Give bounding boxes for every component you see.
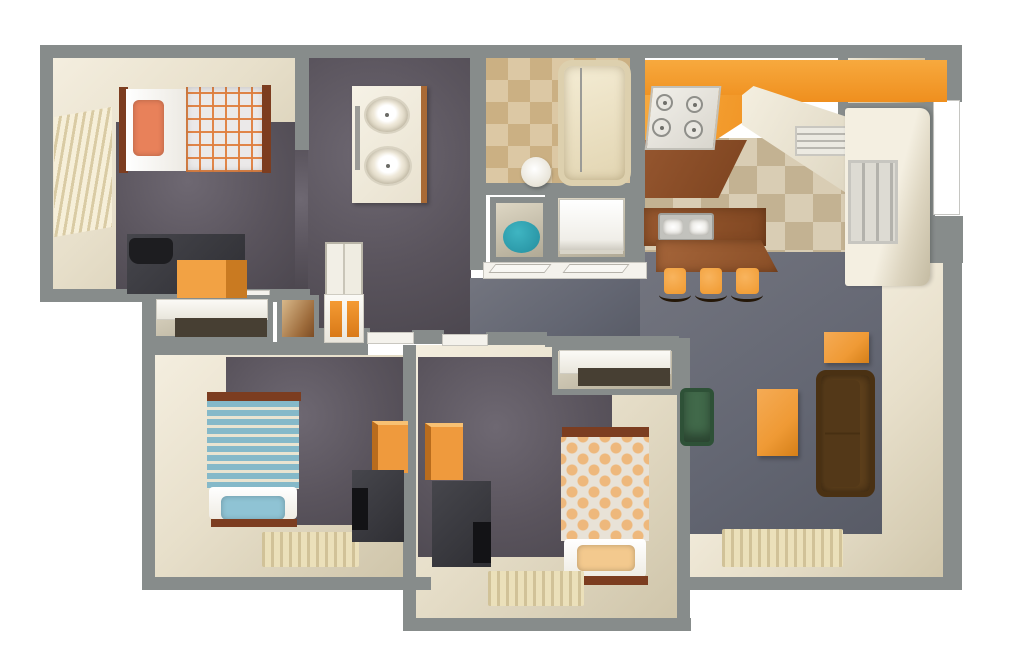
bedroom2-door-threshold bbox=[368, 333, 413, 343]
bed3-pillow bbox=[577, 545, 635, 571]
hall-south-wall-b bbox=[412, 330, 444, 344]
vanity-sink-top bbox=[364, 96, 410, 134]
sofa bbox=[816, 370, 875, 497]
stool-legs-2 bbox=[695, 288, 727, 302]
burner-1 bbox=[656, 94, 673, 111]
bedroom3-closet-gap bbox=[578, 368, 670, 386]
hallway-floor bbox=[470, 278, 648, 338]
bedroom2-tv bbox=[352, 488, 368, 530]
closet-divider-wall bbox=[545, 190, 555, 270]
bedroom3-south-wall bbox=[403, 618, 691, 631]
end-table bbox=[824, 332, 869, 363]
bed1-footboard bbox=[262, 85, 271, 173]
bedroom2-north-wall bbox=[155, 342, 368, 355]
bedroom3-rug bbox=[488, 571, 584, 606]
bed2-footboard bbox=[211, 519, 297, 527]
bed1-pillow bbox=[133, 100, 164, 156]
island-sink bbox=[658, 213, 714, 241]
west-wall-upper bbox=[40, 45, 53, 302]
living-room-rug bbox=[722, 529, 843, 567]
kitchen-west-wall bbox=[630, 45, 645, 270]
bedroom2-wardrobe bbox=[372, 421, 408, 473]
kitchen-window bbox=[848, 160, 898, 244]
stool-legs-1 bbox=[659, 288, 691, 302]
burner-3 bbox=[652, 118, 671, 137]
bed2-striped-blanket bbox=[207, 401, 299, 489]
vanity-sink-bottom bbox=[364, 146, 412, 186]
bedroom3-tv bbox=[473, 522, 491, 563]
desk-chair bbox=[129, 238, 173, 264]
vanity-faucet bbox=[355, 106, 360, 170]
bedroom2-rug bbox=[262, 532, 359, 567]
bed3-dotted-blanket bbox=[561, 437, 649, 541]
bed1-plaid-blanket bbox=[186, 87, 264, 172]
toilet bbox=[521, 157, 551, 187]
bathroom-divider-wall bbox=[470, 45, 486, 270]
floor-plan bbox=[0, 0, 1024, 662]
bedroom3-door-threshold bbox=[443, 335, 487, 345]
hall-storage-closet bbox=[277, 295, 319, 342]
bathtub bbox=[558, 60, 631, 186]
bedroom1-doorway-floor bbox=[295, 150, 309, 292]
burner-4 bbox=[684, 120, 703, 139]
living-east-wall bbox=[943, 250, 962, 590]
bedroom1-east-wall bbox=[295, 45, 309, 150]
closet-door-leaf-left bbox=[488, 264, 551, 273]
closet-door-leaf-right bbox=[562, 264, 629, 273]
bookshelf-cubby-right bbox=[347, 301, 359, 337]
bedroom1-closet-shelf bbox=[157, 300, 267, 319]
burner-2 bbox=[686, 96, 703, 113]
water-heater bbox=[503, 221, 540, 253]
hall-south-wall-c bbox=[486, 332, 547, 345]
bookshelf-cubby-left bbox=[330, 301, 342, 337]
bedroom2-south-wall bbox=[142, 577, 431, 590]
washer-dryer bbox=[560, 200, 623, 250]
file-cabinet bbox=[177, 260, 247, 298]
armchair bbox=[680, 388, 714, 446]
bedroom1-window bbox=[54, 107, 112, 237]
bed2-pillow bbox=[221, 496, 285, 520]
bedroom3-wardrobe bbox=[425, 423, 463, 480]
bedroom1-closet-gap bbox=[175, 318, 267, 337]
bedroom3-west-wall bbox=[403, 345, 416, 631]
bed3-headboard bbox=[562, 427, 649, 437]
living-south-wall bbox=[677, 577, 962, 590]
northeast-wall-mid bbox=[925, 216, 963, 263]
coffee-table bbox=[757, 389, 798, 456]
hall-cabinet bbox=[325, 242, 363, 296]
stool-legs-3 bbox=[731, 288, 763, 302]
stove bbox=[645, 86, 722, 150]
shower-divider bbox=[580, 68, 582, 172]
bed2-headboard bbox=[207, 392, 301, 401]
front-door bbox=[933, 100, 960, 215]
